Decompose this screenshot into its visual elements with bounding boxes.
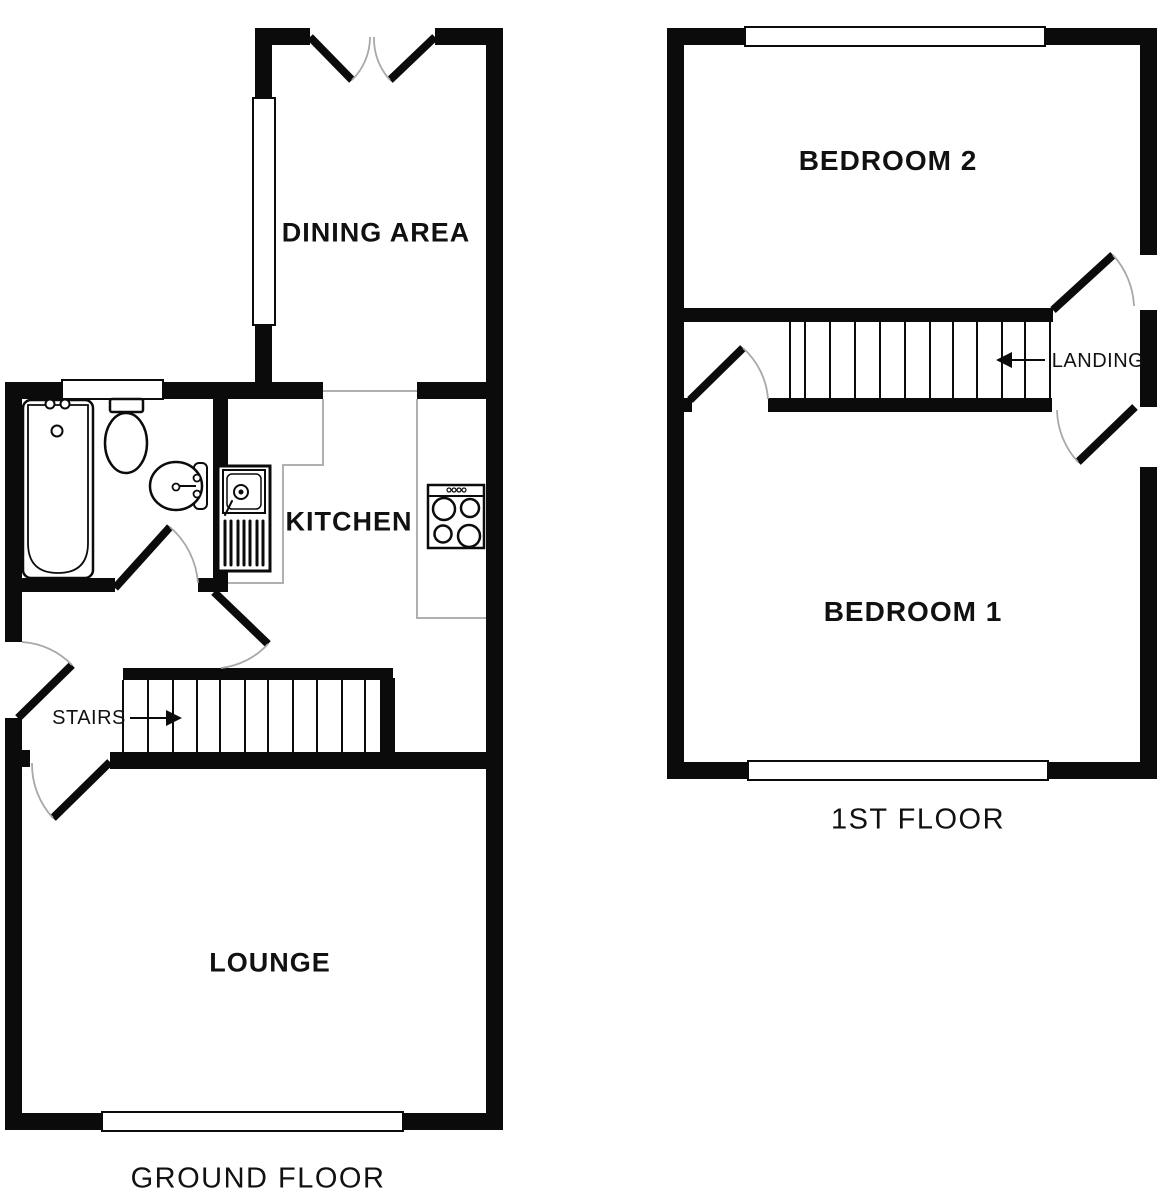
floorplan-canvas: DINING AREA KITCHEN STAIRS LOUNGE GROUND… [0, 0, 1173, 1200]
wall [5, 578, 115, 592]
bedroom1-window [748, 761, 1048, 780]
hob-burner [458, 525, 480, 547]
bedroom2-label: BEDROOM 2 [799, 147, 978, 175]
door-swing-arc [32, 763, 53, 818]
toilet-symbol [105, 399, 147, 473]
hob-burner [435, 526, 452, 543]
stairs-direction-arrow [130, 710, 182, 726]
wash-basin-symbol [150, 462, 207, 510]
dining-window [253, 98, 275, 325]
door-swing-arc [221, 644, 268, 668]
hob-burner [461, 499, 479, 517]
bathroom-window [62, 380, 163, 399]
hob-burner [433, 498, 455, 520]
hob-control-knob [452, 488, 456, 492]
ground-floor-title: GROUND FLOOR [131, 1165, 386, 1194]
toilet-cistern [110, 399, 143, 412]
arrow-head [996, 352, 1012, 368]
bath-drain [52, 426, 63, 437]
wall [486, 28, 503, 1130]
lounge-door [32, 762, 110, 818]
cooker-hob-symbol [428, 485, 484, 548]
door-swing-arc [170, 527, 198, 583]
bedroom1-label: BEDROOM 1 [824, 598, 1003, 626]
wall [5, 750, 30, 767]
bedroom2-window [745, 27, 1045, 46]
french-doors [310, 37, 435, 80]
wall-lounge-top [110, 752, 503, 769]
hob-control-knob [457, 488, 461, 492]
bath-tap [61, 400, 70, 409]
door-swing-arc [1113, 255, 1134, 306]
bedroom1-door [1057, 407, 1135, 462]
door-leaf [1078, 407, 1135, 462]
kitchen-door [214, 592, 268, 668]
wall-bedroom2-bottom [667, 308, 1053, 322]
bedroom2-door [1053, 255, 1134, 310]
wall [417, 382, 486, 399]
sink-drainer [225, 521, 263, 565]
toilet-bowl [105, 413, 147, 473]
landing-left-door [690, 348, 768, 400]
first-floor-title: 1ST FLOOR [831, 806, 1005, 835]
wall-stairs-kitchen [380, 678, 395, 757]
wall [1140, 45, 1157, 255]
wall-bedroom1-top [768, 398, 1052, 412]
door-leaf [1053, 255, 1113, 310]
basin-drain [173, 484, 180, 491]
stairs-top-rail [123, 668, 393, 680]
door-leaf [310, 37, 352, 80]
door-leaf [390, 37, 435, 80]
door-swing-arc [1057, 410, 1078, 462]
door-leaf [115, 527, 170, 588]
kitchen-label: KITCHEN [286, 509, 413, 536]
wall [198, 578, 228, 592]
lounge-label: LOUNGE [209, 950, 331, 977]
landing-label: LANDING [1052, 351, 1144, 371]
wall [1140, 467, 1157, 779]
first-floor-plan [667, 27, 1157, 780]
lounge-window [102, 1112, 403, 1131]
sink-faucet-center [239, 490, 244, 495]
wall [255, 28, 310, 45]
first-floor-walls [667, 28, 1157, 779]
wall [667, 45, 684, 779]
door-swing-arc [352, 37, 370, 80]
door-swing-arc [743, 348, 768, 399]
door-swing-arc [22, 642, 72, 665]
door-swing-arc [374, 37, 390, 80]
landing-direction-arrow [996, 352, 1045, 368]
door-leaf [690, 348, 743, 400]
hob-control-knob [447, 488, 451, 492]
stairs-label: STAIRS [52, 708, 126, 728]
wall [5, 765, 22, 1113]
door-leaf [214, 592, 268, 644]
ground-staircase [123, 680, 365, 752]
bathtub-symbol [23, 400, 93, 579]
basin-tap [194, 475, 201, 482]
bathroom-door [115, 527, 198, 588]
dining-area-label: DINING AREA [282, 220, 471, 247]
bath-tap [46, 400, 55, 409]
basin-tap [194, 491, 201, 498]
kitchen-sink-symbol [218, 466, 270, 571]
hob-control-knob [462, 488, 466, 492]
door-leaf [53, 762, 110, 818]
wall [5, 399, 22, 642]
